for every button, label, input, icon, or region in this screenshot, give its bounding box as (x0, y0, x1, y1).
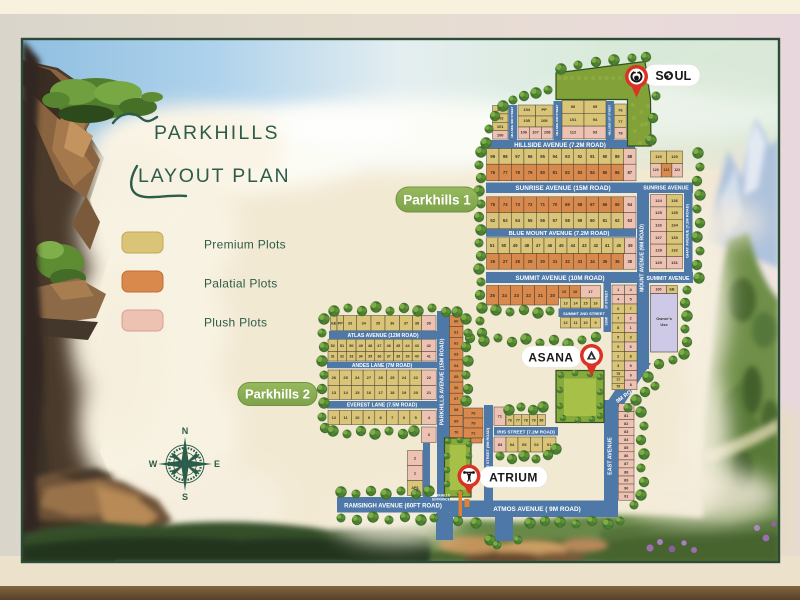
svg-text:9: 9 (630, 373, 632, 377)
svg-text:39: 39 (406, 355, 410, 359)
svg-text:70: 70 (454, 430, 458, 434)
svg-text:30: 30 (540, 259, 545, 264)
svg-text:Plush Plots: Plush Plots (204, 316, 267, 330)
svg-text:58: 58 (565, 218, 570, 223)
svg-text:39: 39 (427, 321, 431, 325)
svg-text:77: 77 (503, 170, 508, 175)
svg-text:ATMOS AVENUE ( 9M ROAD): ATMOS AVENUE ( 9M ROAD) (493, 506, 581, 513)
svg-text:22: 22 (526, 293, 531, 298)
svg-text:SUMMIT 2ND STREET: SUMMIT 2ND STREET (563, 311, 605, 316)
svg-text:48: 48 (368, 344, 372, 348)
svg-text:62: 62 (454, 342, 458, 346)
svg-text:96: 96 (528, 154, 533, 159)
svg-text:46: 46 (387, 344, 391, 348)
svg-text:13: 13 (332, 390, 337, 395)
svg-text:26: 26 (490, 259, 495, 264)
svg-text:36: 36 (377, 355, 381, 359)
svg-text:ENTRANCE: ENTRANCE (432, 498, 450, 502)
svg-text:82: 82 (624, 422, 628, 426)
svg-text:121: 121 (664, 168, 670, 172)
svg-text:33: 33 (349, 355, 353, 359)
svg-text:59: 59 (578, 218, 583, 223)
svg-text:42: 42 (593, 243, 598, 248)
svg-text:55: 55 (528, 218, 533, 223)
svg-text:129: 129 (655, 260, 662, 265)
svg-text:97: 97 (515, 154, 520, 159)
svg-text:13: 13 (563, 301, 567, 305)
svg-text:18: 18 (573, 290, 577, 294)
svg-text:Use: Use (660, 322, 668, 327)
svg-text:ATRIUM: ATRIUM (489, 471, 538, 485)
svg-text:43: 43 (415, 344, 419, 348)
svg-text:33: 33 (348, 321, 352, 325)
svg-text:24: 24 (355, 375, 360, 380)
svg-text:75: 75 (490, 202, 495, 207)
svg-text:41: 41 (605, 243, 610, 248)
svg-text:69: 69 (565, 202, 570, 207)
svg-text:79: 79 (471, 420, 476, 425)
svg-text:10: 10 (583, 321, 587, 325)
svg-text:1: 1 (617, 288, 619, 292)
svg-text:65: 65 (454, 375, 458, 379)
svg-text:02: 02 (534, 442, 539, 447)
svg-text:20: 20 (550, 293, 555, 298)
svg-text:MOUNT AVENUE (9M ROAD): MOUNT AVENUE (9M ROAD) (640, 224, 646, 292)
svg-text:6: 6 (630, 345, 632, 349)
svg-text:50: 50 (501, 243, 506, 248)
svg-text:31: 31 (553, 259, 558, 264)
svg-text:96: 96 (571, 104, 576, 109)
svg-text:61: 61 (603, 218, 608, 223)
svg-text:PP: PP (338, 321, 344, 325)
svg-text:35: 35 (376, 321, 380, 325)
svg-text:79: 79 (616, 385, 620, 389)
svg-text:31: 31 (331, 355, 335, 359)
svg-text:68: 68 (454, 408, 458, 412)
svg-text:119: 119 (655, 154, 662, 159)
svg-text:94: 94 (593, 117, 598, 122)
svg-text:36: 36 (615, 259, 620, 264)
svg-text:127: 127 (655, 235, 662, 240)
svg-text:78: 78 (515, 170, 520, 175)
svg-text:38: 38 (396, 355, 400, 359)
svg-text:25: 25 (343, 375, 348, 380)
svg-text:108: 108 (544, 129, 551, 134)
svg-text:20: 20 (413, 390, 418, 395)
svg-text:33: 33 (578, 259, 583, 264)
svg-text:85: 85 (624, 446, 628, 450)
svg-text:04: 04 (510, 442, 515, 447)
svg-text:32: 32 (340, 355, 344, 359)
svg-text:SUMMIT AVENUE: SUMMIT AVENUE (647, 276, 690, 282)
svg-text:93: 93 (565, 154, 570, 159)
svg-text:66: 66 (454, 386, 458, 390)
svg-text:Owner's: Owner's (656, 316, 672, 321)
svg-text:69: 69 (454, 419, 458, 423)
svg-text:52: 52 (490, 218, 495, 223)
svg-text:83: 83 (578, 170, 583, 175)
svg-text:65: 65 (615, 202, 620, 207)
svg-text:72: 72 (471, 430, 476, 435)
svg-text:61: 61 (454, 331, 458, 335)
svg-text:1: 1 (630, 326, 632, 330)
svg-text:7: 7 (630, 307, 632, 311)
svg-text:9: 9 (617, 345, 619, 349)
svg-text:12: 12 (563, 321, 567, 325)
svg-text:3: 3 (617, 364, 619, 368)
svg-text:75: 75 (616, 372, 620, 376)
svg-text:45: 45 (396, 344, 400, 348)
svg-text:SUNRISE AVENUE: SUNRISE AVENUE (643, 186, 689, 192)
svg-text:80: 80 (540, 170, 545, 175)
svg-text:Parkhills 2: Parkhills 2 (245, 387, 310, 402)
svg-text:9: 9 (630, 364, 632, 368)
svg-text:57: 57 (553, 218, 558, 223)
svg-text:132: 132 (671, 247, 678, 252)
svg-text:122: 122 (674, 168, 680, 172)
svg-text:60: 60 (590, 218, 595, 223)
svg-text:91: 91 (624, 494, 628, 498)
svg-text:BLUE MOUNT AVENUE (7.2M ROAD): BLUE MOUNT AVENUE (7.2M ROAD) (509, 231, 610, 237)
svg-text:37: 37 (404, 321, 408, 325)
svg-text:67: 67 (454, 397, 458, 401)
svg-text:95: 95 (593, 104, 598, 109)
svg-text:70: 70 (553, 202, 558, 207)
svg-text:SUNRISE AVENUE (15M ROAD): SUNRISE AVENUE (15M ROAD) (515, 185, 610, 192)
svg-text:17: 17 (588, 290, 592, 294)
svg-text:EE: EE (331, 321, 337, 325)
svg-text:47: 47 (377, 344, 381, 348)
svg-text:15: 15 (355, 390, 360, 395)
svg-text:104: 104 (523, 107, 530, 112)
svg-text:77: 77 (516, 418, 520, 422)
svg-text:EVEREST LANE (7.5M ROAD): EVEREST LANE (7.5M ROAD) (347, 403, 418, 409)
svg-text:24: 24 (502, 293, 507, 298)
svg-text:78: 78 (618, 131, 623, 136)
svg-text:PARKHILLS: PARKHILLS (154, 122, 280, 144)
svg-text:77: 77 (618, 119, 623, 124)
svg-text:82: 82 (565, 170, 570, 175)
svg-text:71: 71 (540, 202, 545, 207)
svg-text:84: 84 (590, 170, 595, 175)
svg-text:67: 67 (590, 202, 595, 207)
svg-text:S: S (182, 492, 188, 502)
svg-text:38: 38 (627, 259, 632, 264)
svg-text:128: 128 (655, 247, 662, 252)
svg-text:ATLAS AVENUE (12M ROAD): ATLAS AVENUE (12M ROAD) (347, 333, 418, 339)
svg-text:112: 112 (570, 130, 577, 135)
svg-text:HILLSIDE 2ND STREET: HILLSIDE 2ND STREET (555, 104, 559, 135)
svg-text:25: 25 (490, 293, 495, 298)
svg-text:60: 60 (454, 319, 458, 323)
svg-text:48: 48 (524, 243, 529, 248)
svg-text:83: 83 (498, 442, 503, 447)
svg-text:56: 56 (540, 218, 545, 223)
svg-text:RAMSINGH AVENUE (60FT ROAD): RAMSINGH AVENUE (60FT ROAD) (344, 504, 442, 510)
svg-text:92: 92 (578, 154, 583, 159)
svg-text:51: 51 (490, 243, 495, 248)
svg-text:93: 93 (593, 130, 598, 135)
svg-text:GHAT AVENUE (7.2M ROAD): GHAT AVENUE (7.2M ROAD) (685, 203, 690, 258)
svg-text:72: 72 (528, 202, 533, 207)
svg-text:105: 105 (523, 118, 530, 123)
svg-text:8: 8 (630, 383, 632, 387)
svg-text:63: 63 (627, 218, 632, 223)
svg-text:49: 49 (359, 344, 363, 348)
svg-text:50: 50 (349, 344, 353, 348)
svg-text:25: 25 (390, 375, 395, 380)
svg-text:3: 3 (630, 336, 632, 340)
svg-text:16: 16 (593, 301, 597, 305)
svg-text:8: 8 (630, 355, 632, 359)
svg-text:68: 68 (578, 202, 583, 207)
svg-text:2: 2 (630, 317, 632, 321)
svg-text:94: 94 (553, 154, 558, 159)
svg-text:15: 15 (583, 301, 587, 305)
svg-text:73: 73 (515, 202, 520, 207)
svg-text:39: 39 (628, 243, 633, 248)
svg-text:E: E (214, 459, 220, 469)
svg-text:64: 64 (627, 202, 632, 207)
svg-text:05: 05 (522, 442, 527, 447)
svg-text:81: 81 (624, 414, 628, 418)
svg-text:42: 42 (427, 344, 431, 348)
svg-text:34: 34 (359, 355, 363, 359)
svg-text:40: 40 (415, 355, 419, 359)
svg-text:101: 101 (570, 117, 577, 122)
svg-text:HILLSIDE 1ST STREET: HILLSIDE 1ST STREET (607, 104, 611, 135)
svg-text:90: 90 (603, 154, 608, 159)
svg-text:107: 107 (532, 129, 539, 134)
svg-text:44: 44 (570, 243, 575, 248)
svg-text:N: N (182, 426, 189, 436)
svg-text:6: 6 (617, 307, 619, 311)
svg-text:88: 88 (624, 470, 628, 474)
svg-text:19: 19 (402, 390, 407, 395)
svg-text:66: 66 (603, 202, 608, 207)
svg-text:131: 131 (671, 260, 678, 265)
svg-text:9: 9 (594, 321, 596, 325)
svg-text:HILLSIDE 3RD STREET: HILLSIDE 3RD STREET (510, 106, 514, 137)
svg-text:51: 51 (340, 344, 344, 348)
svg-text:76: 76 (618, 107, 623, 112)
svg-text:81: 81 (553, 170, 558, 175)
svg-text:49: 49 (513, 243, 518, 248)
svg-text:11: 11 (573, 321, 577, 325)
svg-text:17: 17 (378, 390, 383, 395)
svg-text:120: 120 (653, 168, 659, 172)
svg-text:100: 100 (656, 288, 662, 292)
svg-text:52: 52 (331, 344, 335, 348)
svg-text:106: 106 (520, 129, 527, 134)
svg-text:23: 23 (514, 293, 519, 298)
svg-text:27: 27 (503, 259, 508, 264)
svg-text:SUMMIT AVENUE (10M ROAD): SUMMIT AVENUE (10M ROAD) (515, 275, 604, 282)
svg-text:19: 19 (562, 290, 566, 294)
svg-text:101: 101 (497, 124, 504, 129)
svg-text:53: 53 (503, 218, 508, 223)
svg-text:PP: PP (542, 107, 548, 112)
svg-text:HILLSIDE AVENUE (7.2M ROAD): HILLSIDE AVENUE (7.2M ROAD) (514, 143, 606, 149)
svg-text:126: 126 (655, 223, 662, 228)
svg-text:86: 86 (615, 170, 620, 175)
svg-text:54: 54 (515, 218, 520, 223)
svg-text:40: 40 (616, 243, 621, 248)
svg-text:PARKHILLS AVENUE (15M ROAD): PARKHILLS AVENUE (15M ROAD) (440, 338, 446, 425)
svg-text:ASANA: ASANA (528, 351, 573, 365)
svg-text:35: 35 (603, 259, 608, 264)
svg-text:21: 21 (427, 390, 432, 395)
svg-text:18: 18 (390, 390, 395, 395)
svg-text:2: 2 (617, 355, 619, 359)
svg-text:7: 7 (617, 317, 619, 321)
svg-text:28: 28 (378, 375, 383, 380)
svg-text:SUMMIT 1ST STREET: SUMMIT 1ST STREET (605, 290, 609, 326)
svg-text:120: 120 (671, 154, 678, 159)
svg-text:135: 135 (671, 210, 678, 215)
svg-text:8: 8 (617, 326, 619, 330)
svg-text:EB: EB (670, 288, 675, 292)
svg-text:IRIS STREET (7.2M ROAD): IRIS STREET (7.2M ROAD) (497, 429, 555, 434)
svg-text:99: 99 (490, 154, 495, 159)
svg-text:W: W (149, 459, 158, 469)
svg-text:77: 77 (616, 378, 620, 382)
svg-text:16: 16 (367, 390, 372, 395)
svg-text:88: 88 (627, 154, 632, 159)
svg-text:109: 109 (541, 118, 548, 123)
svg-text:LAYOUT PLAN: LAYOUT PLAN (138, 165, 290, 187)
svg-text:14: 14 (343, 390, 348, 395)
svg-text:35: 35 (368, 355, 372, 359)
svg-text:Premium Plots: Premium Plots (204, 238, 286, 252)
svg-text:87: 87 (627, 170, 632, 175)
svg-text:27: 27 (367, 375, 372, 380)
svg-text:10: 10 (355, 415, 360, 420)
svg-text:90: 90 (624, 486, 628, 490)
svg-text:91: 91 (590, 154, 595, 159)
svg-text:21: 21 (538, 293, 543, 298)
svg-text:24: 24 (402, 375, 407, 380)
svg-text:133: 133 (671, 235, 678, 240)
svg-text:78: 78 (524, 418, 528, 422)
svg-text:76: 76 (490, 170, 495, 175)
svg-text:134: 134 (671, 223, 678, 228)
svg-text:45: 45 (559, 243, 564, 248)
svg-text:100: 100 (497, 132, 504, 137)
svg-text:136: 136 (671, 198, 678, 203)
svg-text:89: 89 (615, 154, 620, 159)
svg-text:22: 22 (413, 375, 418, 380)
svg-text:76: 76 (471, 410, 476, 415)
svg-text:46: 46 (547, 243, 552, 248)
svg-text:79: 79 (532, 418, 536, 422)
svg-text:UL: UL (675, 69, 692, 83)
svg-text:5: 5 (630, 298, 632, 302)
svg-text:80: 80 (540, 418, 544, 422)
svg-text:EAST AVENUE: EAST AVENUE (608, 437, 614, 475)
svg-text:ANDES LANE (7M ROAD): ANDES LANE (7M ROAD) (352, 363, 413, 369)
svg-text:85: 85 (603, 170, 608, 175)
svg-text:Palatial Plots: Palatial Plots (204, 277, 278, 291)
svg-text:37: 37 (387, 355, 391, 359)
svg-text:74: 74 (503, 202, 508, 207)
svg-text:124: 124 (655, 198, 662, 203)
svg-text:29: 29 (528, 259, 533, 264)
svg-text:41: 41 (427, 355, 431, 359)
svg-text:32: 32 (565, 259, 570, 264)
svg-text:S: S (655, 69, 663, 83)
svg-text:86: 86 (624, 454, 628, 458)
svg-text:5: 5 (617, 336, 619, 340)
svg-text:87: 87 (624, 462, 628, 466)
svg-text:76: 76 (508, 418, 512, 422)
svg-text:95: 95 (540, 154, 545, 159)
svg-text:89: 89 (624, 478, 628, 482)
svg-text:71: 71 (497, 414, 502, 419)
svg-text:34: 34 (590, 259, 595, 264)
svg-text:43: 43 (582, 243, 587, 248)
svg-text:83: 83 (624, 430, 628, 434)
svg-text:47: 47 (536, 243, 541, 248)
svg-text:22: 22 (427, 375, 432, 380)
svg-text:28: 28 (515, 259, 520, 264)
svg-text:38: 38 (415, 321, 419, 325)
svg-text:26: 26 (332, 375, 337, 380)
svg-text:62: 62 (615, 218, 620, 223)
svg-text:12: 12 (332, 415, 337, 420)
svg-text:79: 79 (528, 170, 533, 175)
svg-text:63: 63 (454, 353, 458, 357)
svg-text:125: 125 (655, 210, 662, 215)
svg-text:98: 98 (503, 154, 508, 159)
svg-text:Parkhills 1: Parkhills 1 (403, 193, 471, 208)
svg-text:36: 36 (390, 321, 394, 325)
